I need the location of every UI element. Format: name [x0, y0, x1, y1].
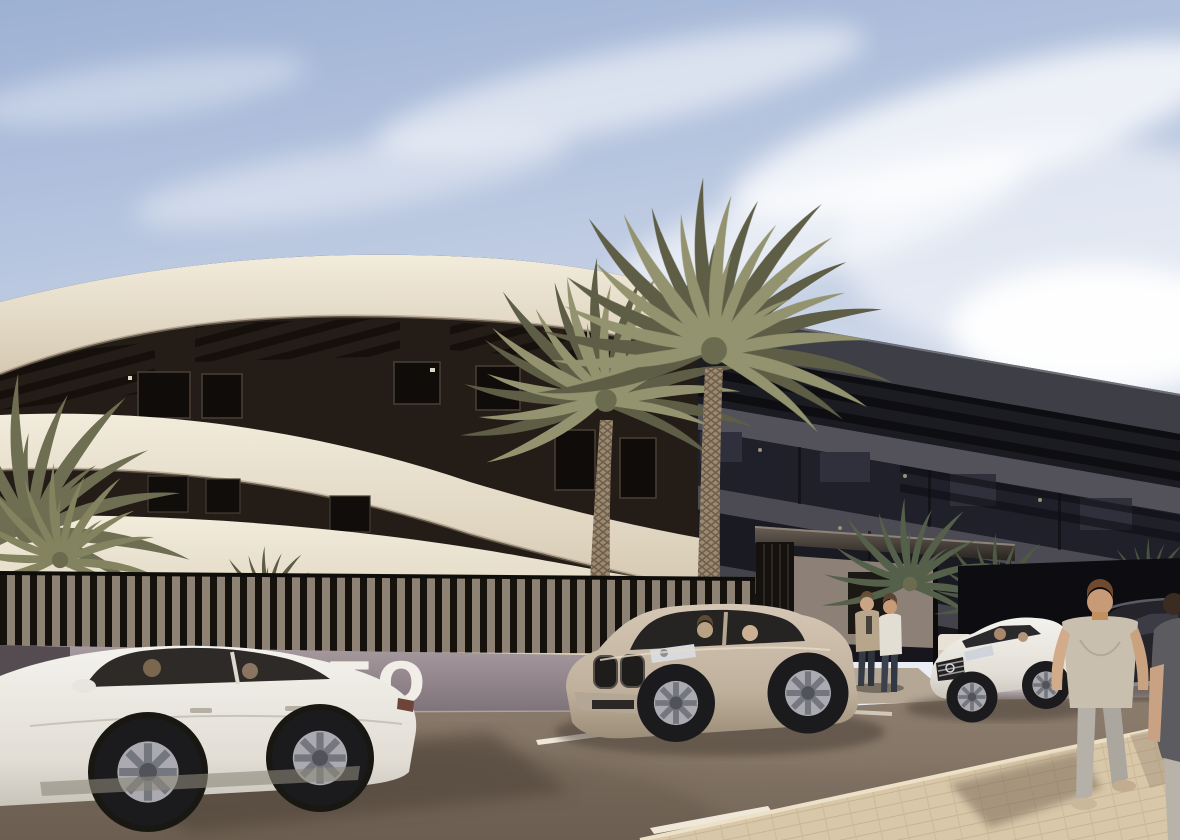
front-wheel	[94, 718, 202, 826]
driver-head	[143, 659, 161, 677]
front-wheel	[947, 672, 998, 723]
bumper-intake	[592, 700, 634, 709]
rear-wheel	[768, 653, 849, 734]
right-shoe	[1112, 780, 1136, 792]
render-viewport: TO	[0, 0, 1180, 840]
driver-head	[994, 628, 1006, 640]
driver-head	[697, 622, 713, 638]
passenger-head	[242, 663, 258, 679]
door-handle	[190, 708, 212, 713]
front-wheel	[637, 664, 715, 742]
side-mirror	[72, 679, 96, 693]
neck	[1092, 612, 1108, 620]
passenger-head	[1018, 632, 1028, 642]
left-shoe	[1071, 798, 1097, 810]
torso-tshirt	[1062, 616, 1138, 708]
b-pillar	[724, 612, 726, 646]
rear-wheel	[272, 710, 368, 806]
architectural-render: TO	[0, 0, 1180, 840]
car-shadow	[905, 695, 1095, 721]
passenger-head	[742, 625, 758, 641]
head	[1087, 589, 1113, 615]
